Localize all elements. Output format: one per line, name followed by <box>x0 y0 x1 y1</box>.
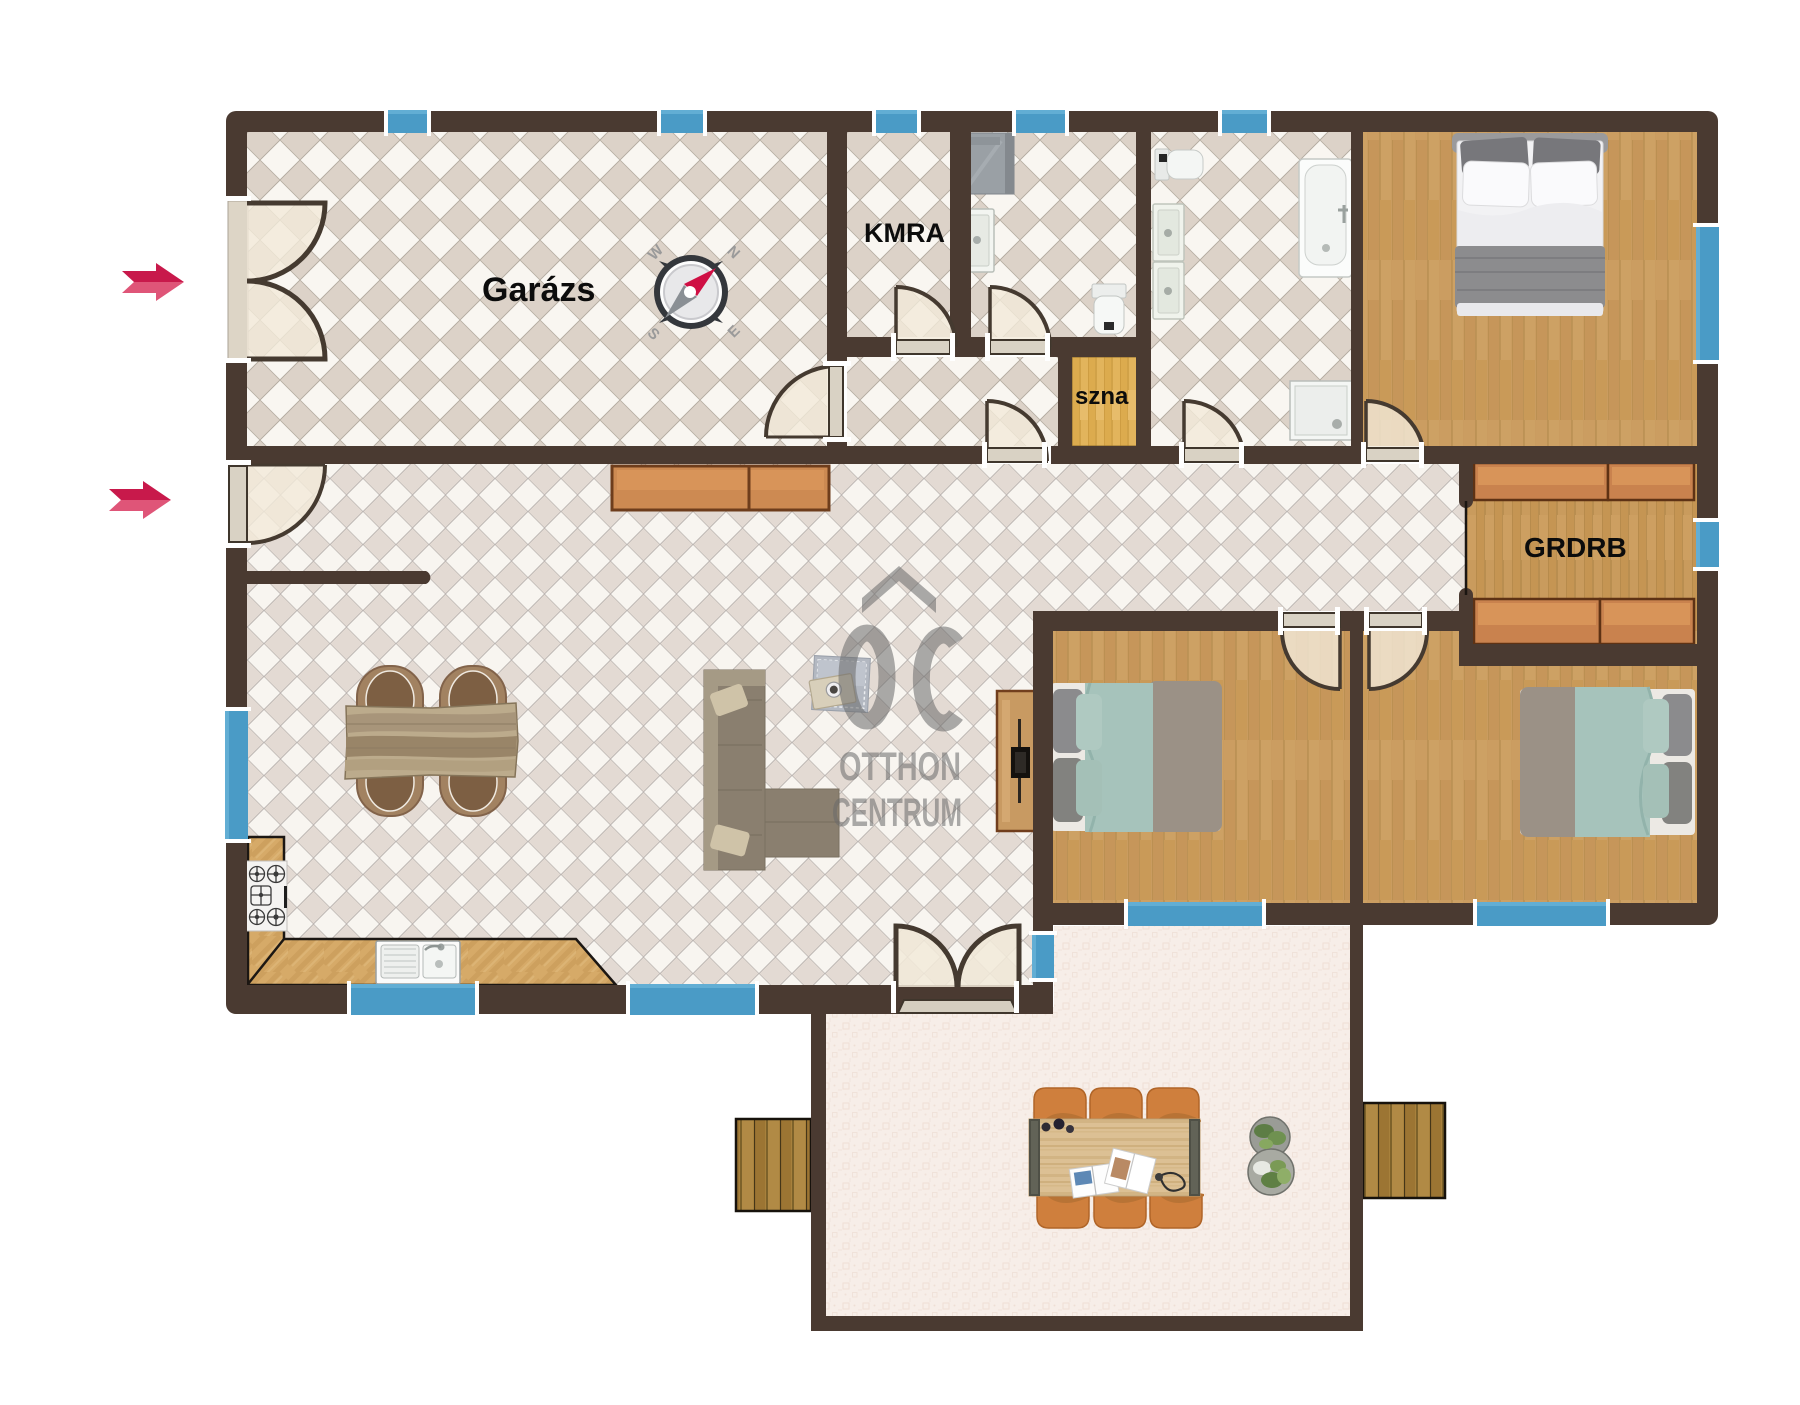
svg-text:OTTHON: OTTHON <box>839 745 961 789</box>
svg-text:KMRA: KMRA <box>864 218 945 248</box>
svg-text:Garázs: Garázs <box>482 271 595 309</box>
svg-text:GRDRB: GRDRB <box>1524 532 1627 563</box>
svg-text:szna: szna <box>1075 383 1129 410</box>
svg-text:CENTRUM: CENTRUM <box>832 791 962 835</box>
